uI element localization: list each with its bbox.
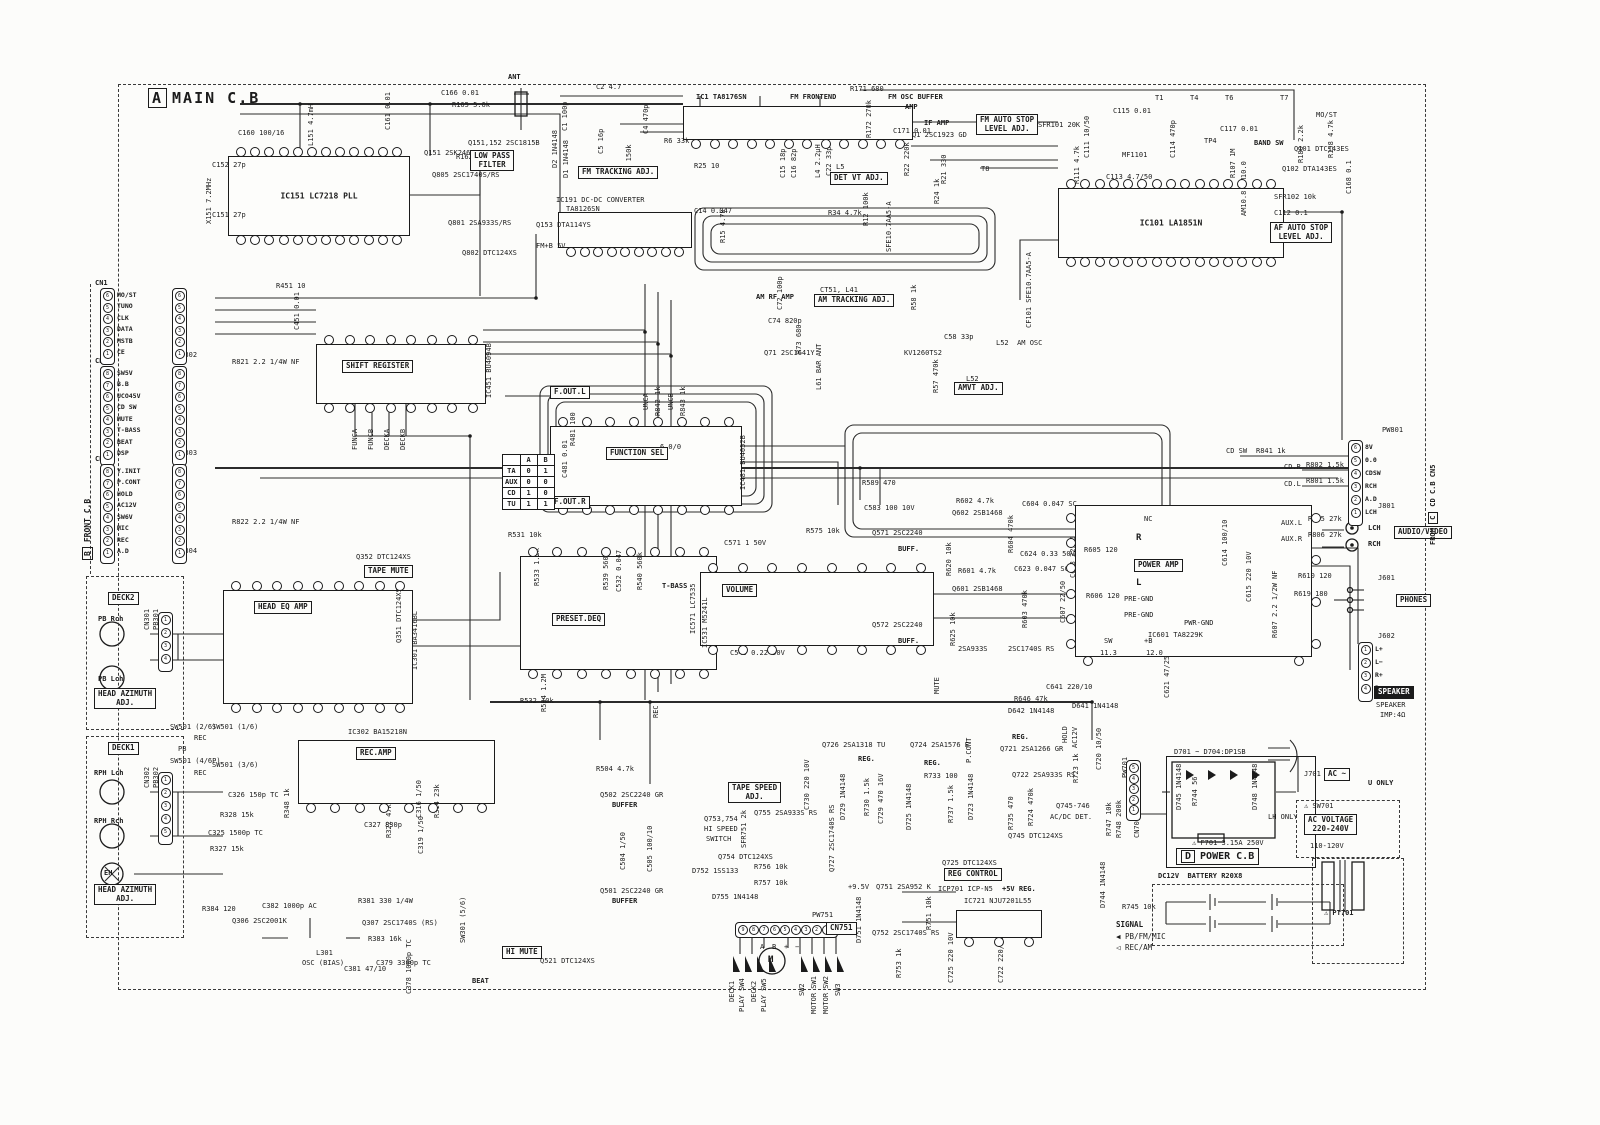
- ic-pin: [857, 563, 867, 573]
- component-label: DC12V BATTERY R20X8: [1158, 873, 1242, 881]
- ic-pin: [528, 547, 538, 557]
- component-label: AMP: [905, 104, 918, 112]
- component-label: PB: [178, 746, 186, 754]
- component-label: R745 10k: [1122, 904, 1156, 912]
- CN1-pin-label: MO/ST: [117, 291, 137, 299]
- component-label: +9.5V: [848, 884, 869, 892]
- component-label: FUNCA: [352, 429, 360, 450]
- label-volume: VOLUME: [722, 584, 757, 597]
- component-label: C114 470p: [1170, 120, 1178, 158]
- label-cn751: CN751: [826, 922, 857, 935]
- CN1-pin: 4: [175, 314, 185, 324]
- component-label: SW3: [835, 983, 843, 996]
- board-ref-d: D: [1181, 850, 1195, 863]
- component-label: R606 120: [1086, 593, 1120, 601]
- CN1-pin: 6: [175, 291, 185, 301]
- component-label: Q502 2SC2240 GR: [600, 792, 663, 800]
- CN1-pin-label: CLK: [117, 314, 129, 322]
- label-f-out-r: F.OUT.R: [550, 496, 590, 509]
- component-label: SFR751 2k: [741, 810, 749, 848]
- func-table-cell: 1: [537, 466, 554, 477]
- ic-pin: [1152, 257, 1162, 267]
- component-label: C730 220 10V: [804, 759, 812, 810]
- ic-pin: [293, 147, 303, 157]
- component-label: SFE10.7AA5-A: [886, 201, 894, 252]
- component-label: REG.: [1012, 734, 1029, 742]
- component-label: C583 100 10V: [864, 505, 915, 513]
- CN751-pin: 9: [738, 925, 748, 935]
- ic301-head-eq-amp: [223, 590, 413, 704]
- component-label: IC191 DC-DC CONVERTER: [556, 197, 645, 205]
- CN3-pin-label: SW6V: [117, 513, 133, 521]
- component-label: R12 100k: [863, 192, 871, 226]
- board-ref-c: C: [1428, 512, 1438, 524]
- ic-pin: [964, 937, 974, 947]
- ic-pin: [1095, 179, 1105, 189]
- CN751-pin: 4: [791, 925, 801, 935]
- component-label: REC: [194, 735, 207, 743]
- component-label: Q725 DTC124XS: [942, 860, 997, 868]
- ic-pin: [876, 139, 886, 149]
- arrow-icon: ◀: [1116, 932, 1125, 941]
- component-label: R821 2.2 1/4W NF: [232, 359, 299, 367]
- component-label: C532 0.047: [616, 550, 624, 592]
- label-head-azimuth-adj-: HEAD AZIMUTH ADJ.: [94, 688, 156, 709]
- component-label: PW751: [812, 912, 833, 920]
- ic-pin: [293, 703, 303, 713]
- CN2-pin: 3: [103, 427, 113, 437]
- component-label: L301: [316, 950, 333, 958]
- component-label: C378 1000p TC: [406, 939, 414, 994]
- component-label: R540 560k: [637, 552, 645, 590]
- component-label: U ONLY: [1368, 780, 1393, 788]
- ic-pin: [392, 147, 402, 157]
- CN3-pin: 5: [103, 502, 113, 512]
- ic-pin: [708, 645, 718, 655]
- component-label: IC301 BA3416BL: [412, 611, 420, 670]
- component-label: C115 0.01: [1113, 108, 1151, 116]
- ic-pin: [364, 147, 374, 157]
- label-rec-amp: REC.AMP: [356, 747, 396, 760]
- ic-pin: [675, 669, 685, 679]
- ic-pin: [264, 235, 274, 245]
- component-label: M: [768, 956, 773, 966]
- component-label: R348 1k: [284, 788, 292, 818]
- CN701-pin: 4: [1129, 774, 1139, 784]
- component-label: D729 1N4148: [840, 774, 848, 820]
- CN3-pin: 6: [175, 490, 185, 500]
- component-label: TA8126SN: [566, 206, 600, 214]
- PW801-pin: 4: [1351, 469, 1361, 479]
- component-label: C161 0.01: [385, 92, 393, 130]
- ic-pin: [231, 703, 241, 713]
- CN751-pin: 3: [801, 925, 811, 935]
- component-label: REC: [653, 705, 661, 718]
- ic-pin: [1195, 257, 1205, 267]
- component-label: R843 1k: [680, 386, 688, 416]
- CN1-pin: 2: [103, 337, 113, 347]
- ic191-dcdc: [558, 212, 692, 248]
- component-label: PW801: [1382, 427, 1403, 435]
- ic-pin: [1137, 257, 1147, 267]
- ic-pin: [324, 403, 334, 413]
- component-label: C316 1/50: [416, 780, 424, 818]
- ic-pin: [647, 247, 657, 257]
- component-label: R24 1k: [934, 179, 942, 204]
- component-label: SPEAKER: [1376, 702, 1406, 710]
- component-label: RCH: [1368, 541, 1381, 549]
- component-label: R605 120: [1084, 547, 1118, 555]
- component-label: R751 10k: [926, 896, 934, 930]
- label-head-eq-amp: HEAD EQ AMP: [254, 601, 312, 614]
- cd-board-note: FROM CCD C.B CN5: [1428, 465, 1438, 545]
- CN3-pin: 4: [103, 513, 113, 523]
- CN3-pin: 8: [175, 467, 185, 477]
- label-ac-voltage-220-240v: AC VOLTAGE 220-240V: [1304, 814, 1357, 835]
- component-label: PWR-GND: [1184, 620, 1214, 628]
- CN2-pin: 6: [175, 392, 185, 402]
- ic-pin: [392, 235, 402, 245]
- component-label: IMP:4Ω: [1380, 712, 1405, 720]
- component-label: R532 10k: [520, 698, 554, 706]
- component-label: R21 330: [941, 154, 949, 184]
- label-f-out-l: F.OUT.L: [550, 386, 590, 399]
- CN2-pin-label: MUTE: [117, 415, 133, 423]
- ic-pin: [365, 403, 375, 413]
- CN1-pin: 4: [103, 314, 113, 324]
- component-label: BUFF.: [898, 546, 919, 554]
- component-label: C5 16p: [598, 129, 606, 154]
- PW801-pin-label: 0.0: [1365, 456, 1377, 464]
- CN2-pin-label: BEAT: [117, 438, 133, 446]
- component-label: LCH: [1368, 525, 1381, 533]
- ic481-function-sel: [550, 426, 742, 506]
- ic-pin: [605, 505, 615, 515]
- component-label: R589 470: [862, 480, 896, 488]
- label-deck1: DECK1: [108, 742, 139, 755]
- ic-pin: [427, 335, 437, 345]
- ic-pin: [661, 247, 671, 257]
- CN701-pin: 5: [1129, 763, 1139, 773]
- component-label: R730 1.5k: [864, 778, 872, 816]
- CN2-pin: 1: [103, 450, 113, 460]
- ic-pin: [629, 505, 639, 515]
- component-label: R314 23k: [434, 784, 442, 818]
- component-label: R6 33k: [664, 138, 689, 146]
- CN301-pin: 1: [161, 615, 171, 625]
- ic-pin: [272, 703, 282, 713]
- component-label: MUTE: [934, 677, 942, 694]
- arrow-icon: ◁: [1116, 943, 1125, 952]
- component-label: Q752 2SC1740S RS: [872, 930, 939, 938]
- ic-pin: [279, 235, 289, 245]
- component-label: R531 10k: [508, 532, 542, 540]
- ic-pin: [593, 247, 603, 257]
- component-label: C16 82p: [791, 148, 799, 178]
- component-label: R607 2.2 1/2W NF: [1272, 571, 1280, 638]
- CN2-pin: 2: [175, 438, 185, 448]
- CN2-pin-label: DSP: [117, 449, 129, 457]
- component-label: D751 1N4148: [856, 897, 864, 943]
- CN302-pin: 2: [161, 788, 171, 798]
- component-label: AUX.R: [1281, 536, 1302, 544]
- CN1-pin: 6: [103, 291, 113, 301]
- ic-pin: [650, 669, 660, 679]
- component-label: D642 1N4148: [1008, 708, 1054, 716]
- component-label: Q755 2SA933S RS: [754, 810, 817, 818]
- PW801-pin-label: 8V: [1365, 443, 1373, 451]
- func-table-cell: 1: [520, 488, 537, 499]
- ic-pin: [699, 669, 709, 679]
- CN302-pin: 1: [161, 775, 171, 785]
- component-label: BEAT: [472, 978, 489, 986]
- component-label: C111 10/50: [1084, 116, 1092, 158]
- component-label: C729 470 16V: [878, 773, 886, 824]
- CN3-pin: 3: [103, 525, 113, 535]
- component-label: UNCA: [643, 393, 651, 410]
- component-label: IC302 BA15218N: [348, 729, 407, 737]
- component-label: J601: [1378, 575, 1395, 583]
- component-label: L151 4.7mH: [308, 104, 316, 146]
- component-label: Q724 2SA1576 E: [910, 742, 969, 750]
- ic-pin: [626, 669, 636, 679]
- J602-pin: 2: [1361, 658, 1371, 668]
- component-label: R381 330 1/4W: [358, 898, 413, 906]
- ic-pin: [1266, 179, 1276, 189]
- component-label: C4 470p: [643, 104, 651, 134]
- component-label: R604 470k: [1008, 515, 1016, 553]
- component-label: R735 470: [1008, 796, 1016, 830]
- component-label: DECK1: [729, 981, 737, 1002]
- ic-pin: [994, 937, 1004, 947]
- component-label: C166 0.01: [441, 90, 479, 98]
- ic-pin: [626, 547, 636, 557]
- component-label: C571 1 50V: [724, 540, 766, 548]
- CN3-pin: 7: [175, 479, 185, 489]
- component-label: Q151,152 2SC1815B: [468, 140, 540, 148]
- component-label: CD.R: [1284, 464, 1301, 472]
- label-am-tracking-adj-: AM TRACKING ADJ.: [814, 294, 894, 307]
- ic-pin: [404, 803, 414, 813]
- component-label: T-BASS: [662, 583, 687, 591]
- ic-pin: [916, 645, 926, 655]
- ic-pin: [601, 669, 611, 679]
- CN751-pin: 7: [759, 925, 769, 935]
- component-label: −: [795, 944, 799, 952]
- CN2-pin: 6: [103, 392, 113, 402]
- component-label: SW501 (1/6): [212, 724, 258, 732]
- CN301-pin: 4: [161, 654, 171, 664]
- component-label: LH ONLY: [1268, 814, 1298, 822]
- component-label: SW501 (2/6): [170, 724, 216, 732]
- component-label: SW2: [799, 983, 807, 996]
- label-reg-control: REG CONTROL: [944, 868, 1002, 881]
- component-label: Q754 DTC124XS: [718, 854, 773, 862]
- ic-pin: [330, 803, 340, 813]
- label-fm-auto-stop-level-adj-: FM AUTO STOP LEVEL ADJ.: [976, 114, 1038, 135]
- component-label: C72 100p: [777, 276, 785, 310]
- CN2-pin-label: CD SW: [117, 403, 137, 411]
- component-label: R625 10k: [950, 612, 958, 646]
- ic-pin: [724, 417, 734, 427]
- ic-pin: [427, 403, 437, 413]
- board-ref-b: B: [82, 547, 93, 560]
- CN1-pin: 3: [175, 326, 185, 336]
- ic-pin: [677, 505, 687, 515]
- component-label: HOLD: [1062, 726, 1070, 743]
- CN1-pin: 1: [175, 349, 185, 359]
- component-label: REG.: [858, 756, 875, 764]
- func-table-cell: TU: [503, 499, 521, 510]
- component-label: 110-120V: [1310, 843, 1344, 851]
- CN1-pin-label: TUNO: [117, 302, 133, 310]
- component-label: R737 1.5k: [948, 785, 956, 823]
- component-label: C1 100p: [562, 101, 570, 131]
- ic-pin: [566, 247, 576, 257]
- ic-pin: [765, 139, 775, 149]
- ic-pin: [375, 581, 385, 591]
- component-label: T8: [981, 166, 989, 174]
- label-preset-deq: PRESET.DEQ: [552, 613, 605, 626]
- ic-pin: [802, 139, 812, 149]
- ic-pin: [691, 139, 701, 149]
- component-label: J801: [1378, 503, 1395, 511]
- ic-pin: [1123, 257, 1133, 267]
- label-power-amp: POWER AMP: [1134, 559, 1183, 572]
- ic-pin: [1311, 597, 1321, 607]
- ic-pin: [236, 147, 246, 157]
- component-label: UNCB: [668, 393, 676, 410]
- CN1-pin-label: DATA: [117, 325, 133, 333]
- component-label: DECKB: [400, 429, 408, 450]
- ic-pin: [724, 505, 734, 515]
- label-shift-register: SHIFT REGISTER: [342, 360, 413, 373]
- ic-pin: [468, 403, 478, 413]
- component-label: C725 220 10V: [948, 932, 956, 983]
- component-label: D744 1N4148: [1100, 862, 1108, 908]
- CN2-pin: 1: [175, 450, 185, 460]
- CN3-pin: 1: [103, 548, 113, 558]
- component-label: C624 0.33 50V: [1020, 551, 1075, 559]
- ic-pin: [395, 581, 405, 591]
- component-label: Q501 2SC2240 GR: [600, 888, 663, 896]
- ic151-pll-label: IC151 LC7218 PLL: [229, 192, 409, 201]
- CN2-pin: 7: [103, 381, 113, 391]
- ic-pin: [821, 139, 831, 149]
- CN302-pin: 3: [161, 801, 171, 811]
- func-table-cell: AUX: [503, 477, 521, 488]
- ic-pin: [1311, 639, 1321, 649]
- label-ac-: AC ~: [1324, 768, 1350, 781]
- ic-pin: [1109, 257, 1119, 267]
- CN3-pin-label: P.CONT: [117, 478, 140, 486]
- ic-pin: [607, 247, 617, 257]
- component-label: R539 560k: [603, 552, 611, 590]
- CN3-pin: 3: [175, 525, 185, 535]
- component-label: R327 15k: [210, 846, 244, 854]
- label-function-sel: FUNCTION SEL: [606, 447, 668, 460]
- component-label: SFR102 10k: [1274, 194, 1316, 202]
- component-label: AC12V: [1072, 727, 1080, 748]
- ic-pin: [582, 417, 592, 427]
- ic-pin: [334, 703, 344, 713]
- ic-pin: [710, 139, 720, 149]
- component-label: L52 AM OSC: [996, 340, 1042, 348]
- ic-pin: [708, 563, 718, 573]
- component-label: REC: [194, 770, 207, 778]
- component-label: IC721 NJU7201L55: [964, 898, 1031, 906]
- component-label: Q602 2SB1468: [952, 510, 1003, 518]
- component-label: C604 0.047 SC: [1022, 501, 1077, 509]
- component-label: OSC (BIAS): [302, 960, 344, 968]
- component-label: R601 4.7k: [958, 568, 996, 576]
- ic-pin: [252, 581, 262, 591]
- component-label: R481 100: [570, 412, 578, 446]
- component-label: C152 27p: [212, 162, 246, 170]
- component-label: R744 56: [1192, 776, 1200, 806]
- CN2-pin: 8: [103, 369, 113, 379]
- component-label: AUX.L: [1281, 520, 1302, 528]
- component-label: T7: [1280, 95, 1288, 103]
- component-label: R610 120: [1298, 573, 1332, 581]
- CN301-pin: 2: [161, 628, 171, 638]
- label-tape-mute: TAPE MUTE: [364, 565, 413, 578]
- component-label: +5V REG.: [1002, 886, 1036, 894]
- label-amvt-adj-: AMVT ADJ.: [954, 382, 1003, 395]
- component-label: R748 200k: [1116, 800, 1124, 838]
- component-label: R620 10k: [946, 542, 954, 576]
- CN2-pin-label: B.B: [117, 380, 129, 388]
- ic101-ifdet-label: IC101 LA1851N: [1059, 219, 1283, 228]
- component-label: X151 7.2MHz: [206, 178, 214, 224]
- ic-pin: [252, 703, 262, 713]
- power-board-label: DPOWER C.B: [1176, 848, 1259, 865]
- ic-pin: [1195, 179, 1205, 189]
- func-table-cell: 0: [537, 477, 554, 488]
- func-table-cell: 1: [520, 499, 537, 510]
- CN1-pin-label: MSTB: [117, 337, 133, 345]
- component-label: C382 1000p AC: [262, 903, 317, 911]
- component-label: T4: [1190, 95, 1198, 103]
- component-label: MO/ST: [1316, 112, 1337, 120]
- component-label: Q352 DTC124XS: [356, 554, 411, 562]
- component-label: IC481 BU4052B: [740, 435, 748, 490]
- component-label: AM RF AMP: [756, 294, 794, 302]
- component-label: PLAY SW4: [739, 978, 747, 1012]
- component-label: C327 830p: [364, 822, 402, 830]
- component-label: PRE-GND: [1124, 596, 1154, 604]
- component-label: R724 470k: [1028, 788, 1036, 826]
- ic-pin: [334, 581, 344, 591]
- component-label: R801 1.5k: [1306, 478, 1344, 486]
- ic-pin: [378, 235, 388, 245]
- label-head-azimuth-adj-: HEAD AZIMUTH ADJ.: [94, 884, 156, 905]
- PW801-pin: 2: [1351, 495, 1361, 505]
- ic-pin: [406, 403, 416, 413]
- component-label: T1: [1155, 95, 1163, 103]
- component-label: Q306 2SC2001K: [232, 918, 287, 926]
- func-table-cell: CD: [503, 488, 521, 499]
- CN2-pin: 5: [103, 404, 113, 414]
- component-label: C112 0.1: [1274, 210, 1308, 218]
- label-audio-video: AUDIO/VIDEO: [1394, 526, 1452, 539]
- CN2-pin-label: UCO45V: [117, 392, 140, 400]
- CN1-pin: 3: [103, 326, 113, 336]
- ic-pin: [306, 803, 316, 813]
- CN751-pin: 2: [812, 925, 822, 935]
- component-label: R646 47k: [1014, 696, 1048, 704]
- component-label: R603 470k: [1022, 590, 1030, 628]
